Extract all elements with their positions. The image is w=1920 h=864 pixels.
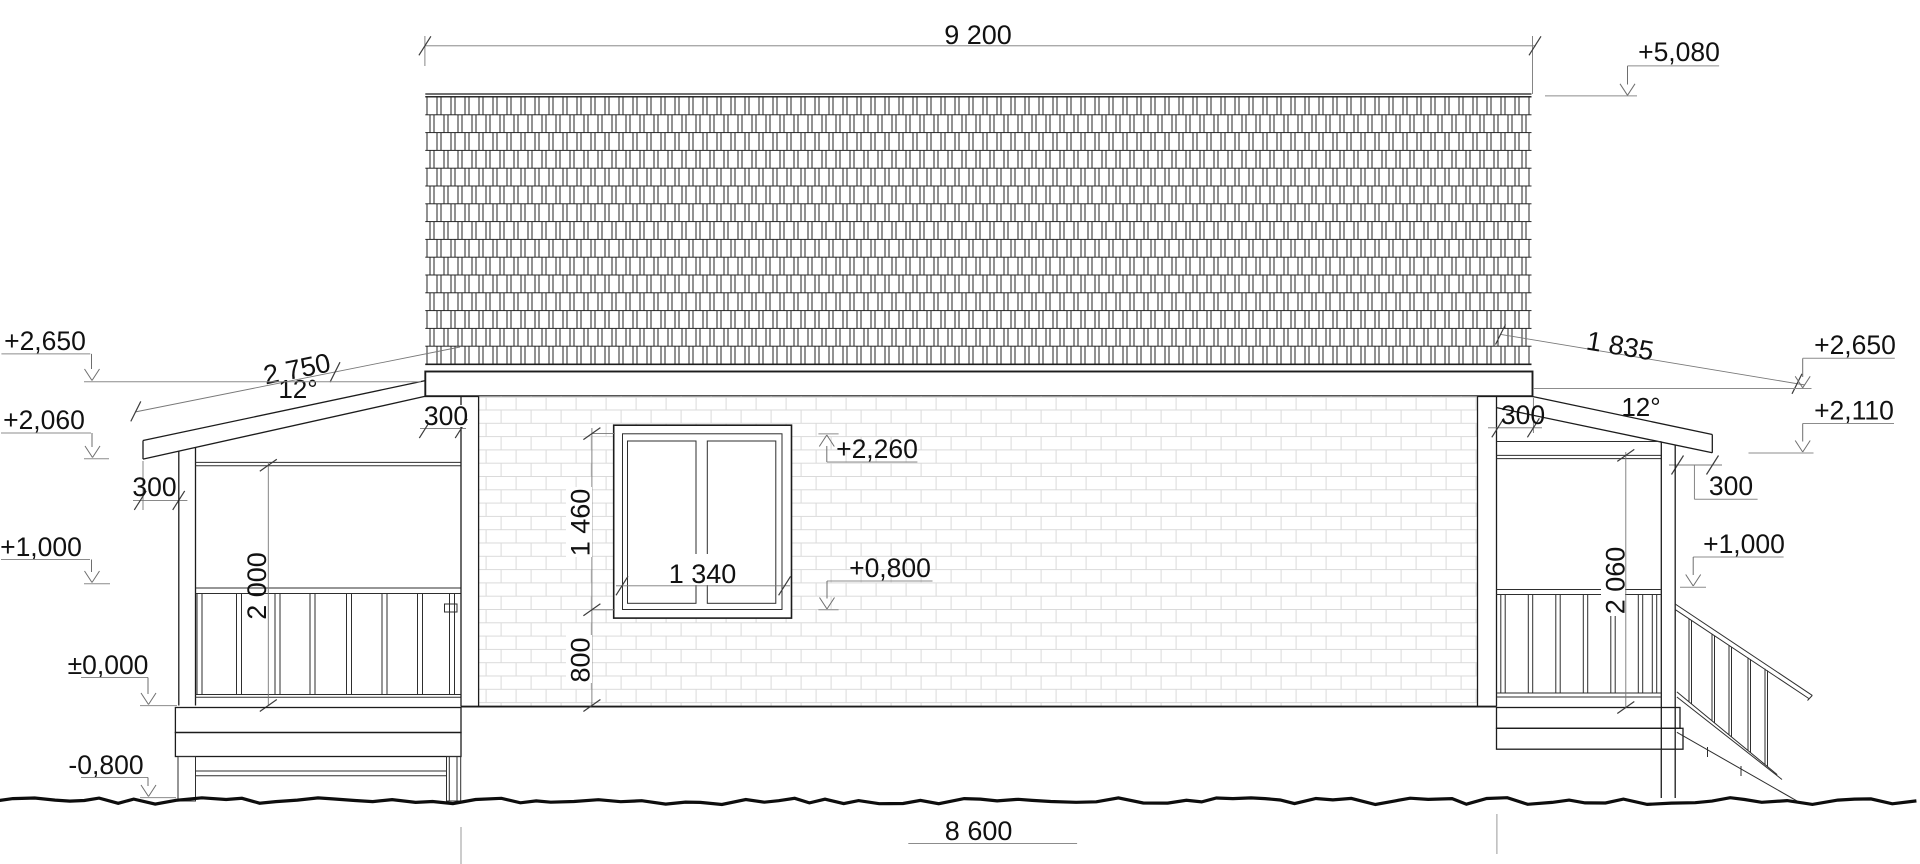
svg-text:+2,260: +2,260: [836, 434, 918, 464]
svg-text:+5,080: +5,080: [1638, 37, 1720, 67]
svg-text:+2,650: +2,650: [4, 326, 86, 356]
svg-text:12°: 12°: [1621, 392, 1660, 422]
svg-text:800: 800: [566, 637, 596, 682]
svg-text:-0,800: -0,800: [68, 750, 143, 780]
svg-text:300: 300: [1501, 400, 1545, 430]
svg-text:+1,000: +1,000: [0, 532, 82, 562]
svg-text:300: 300: [132, 472, 176, 502]
svg-text:9 200: 9 200: [944, 20, 1012, 50]
svg-text:+0,800: +0,800: [849, 553, 931, 583]
svg-text:12°: 12°: [278, 374, 317, 404]
svg-text:2 060: 2 060: [1601, 547, 1631, 615]
svg-text:1 340: 1 340: [669, 559, 737, 589]
svg-text:+2,110: +2,110: [1814, 396, 1894, 426]
svg-text:300: 300: [1709, 471, 1753, 501]
svg-text:1 460: 1 460: [566, 489, 596, 557]
svg-text:8 600: 8 600: [945, 816, 1013, 846]
svg-text:+1,000: +1,000: [1703, 529, 1785, 559]
svg-text:±0,000: ±0,000: [68, 650, 149, 680]
svg-text:+2,060: +2,060: [3, 405, 85, 435]
svg-text:300: 300: [424, 401, 468, 431]
svg-text:2 000: 2 000: [242, 552, 272, 620]
svg-text:+2,650: +2,650: [1814, 330, 1896, 360]
